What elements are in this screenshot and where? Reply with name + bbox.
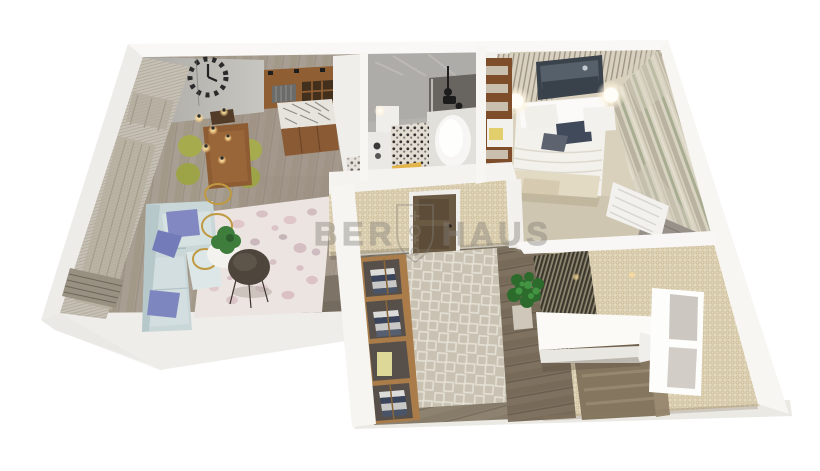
svg-text:HAUS: HAUS <box>442 216 553 252</box>
svg-text:BER: BER <box>314 216 397 252</box>
